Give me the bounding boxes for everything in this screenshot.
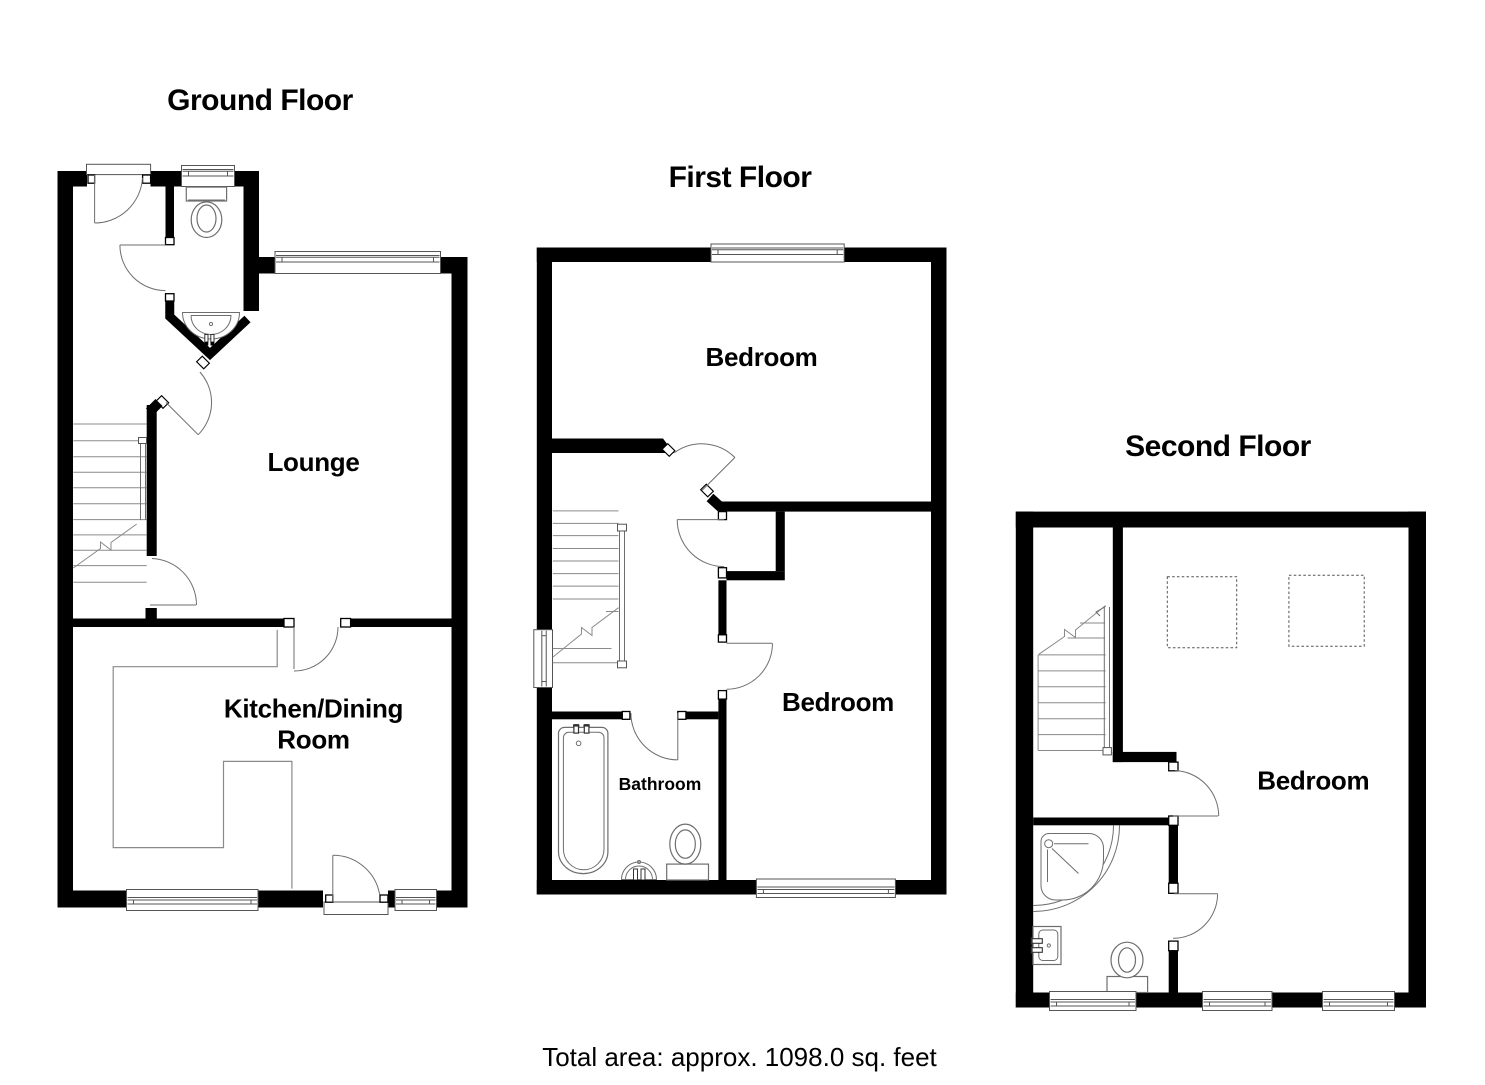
svg-text:Room: Room xyxy=(277,725,349,755)
svg-text:Kitchen/Dining: Kitchen/Dining xyxy=(224,694,403,724)
svg-text:Bathroom: Bathroom xyxy=(619,774,702,794)
svg-text:Bedroom: Bedroom xyxy=(1257,766,1369,796)
svg-text:Second Floor: Second Floor xyxy=(1125,430,1312,463)
svg-text:Total area: approx. 1098.0 sq.: Total area: approx. 1098.0 sq. feet xyxy=(542,1042,937,1072)
svg-text:Bedroom: Bedroom xyxy=(705,342,817,372)
svg-text:Lounge: Lounge xyxy=(267,447,359,477)
svg-text:First Floor: First Floor xyxy=(669,161,813,194)
svg-text:Ground Floor: Ground Floor xyxy=(167,84,353,117)
svg-text:Bedroom: Bedroom xyxy=(782,687,894,717)
